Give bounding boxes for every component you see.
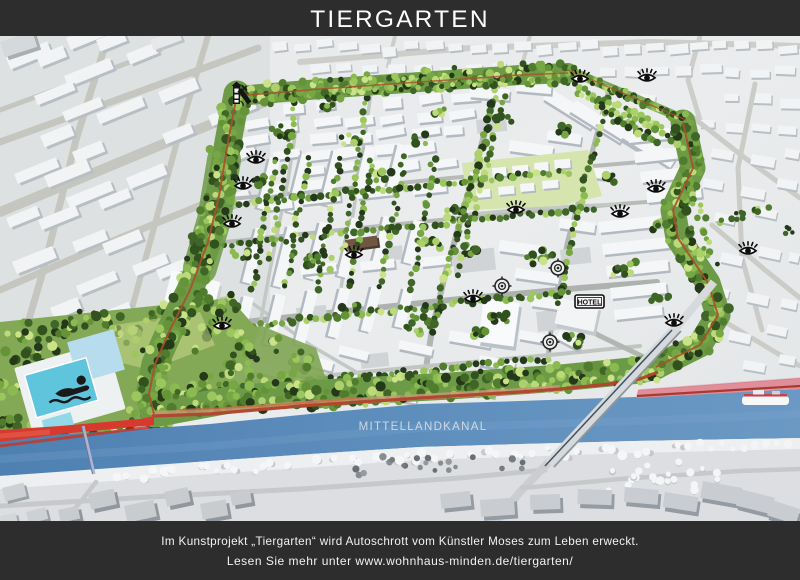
svg-text:HOTEL: HOTEL: [578, 300, 602, 307]
svg-text:TIERGARTEN: TIERGARTEN: [310, 6, 489, 33]
svg-text:Lesen Sie mehr unter www.wohnh: Lesen Sie mehr unter www.wohnhaus-minden…: [227, 554, 574, 568]
svg-text:Im Kunstprojekt „Tiergarten“ w: Im Kunstprojekt „Tiergarten“ wird Autosc…: [161, 535, 638, 548]
svg-text:MITTELLANDKANAL: MITTELLANDKANAL: [359, 421, 488, 433]
